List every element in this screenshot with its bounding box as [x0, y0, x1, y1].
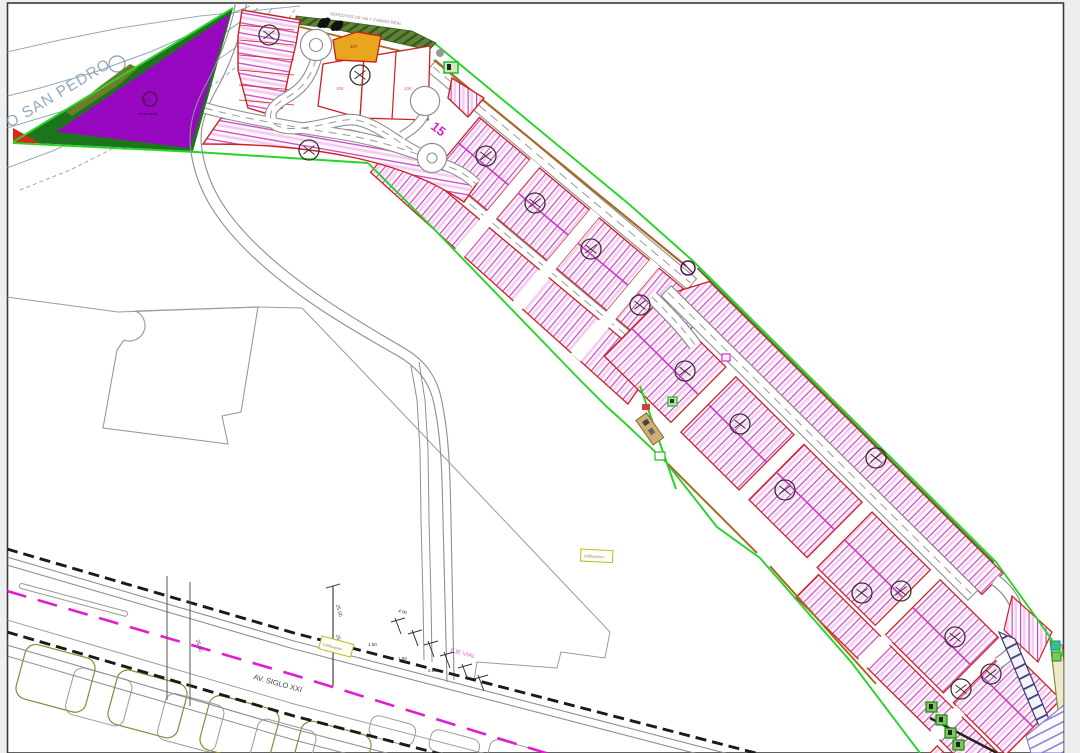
svg-text:2.00: 2.00	[428, 668, 437, 673]
svg-text:Lotificacion: Lotificacion	[584, 553, 604, 559]
svg-text:area verde: area verde	[138, 111, 158, 116]
svg-text:A.V.: A.V.	[143, 98, 152, 104]
svg-text:1.50: 1.50	[368, 642, 377, 647]
svg-text:108: 108	[336, 86, 344, 91]
svg-text:109: 109	[404, 86, 412, 91]
svg-text:107: 107	[350, 44, 358, 49]
svg-text:1.50: 1.50	[398, 656, 407, 661]
